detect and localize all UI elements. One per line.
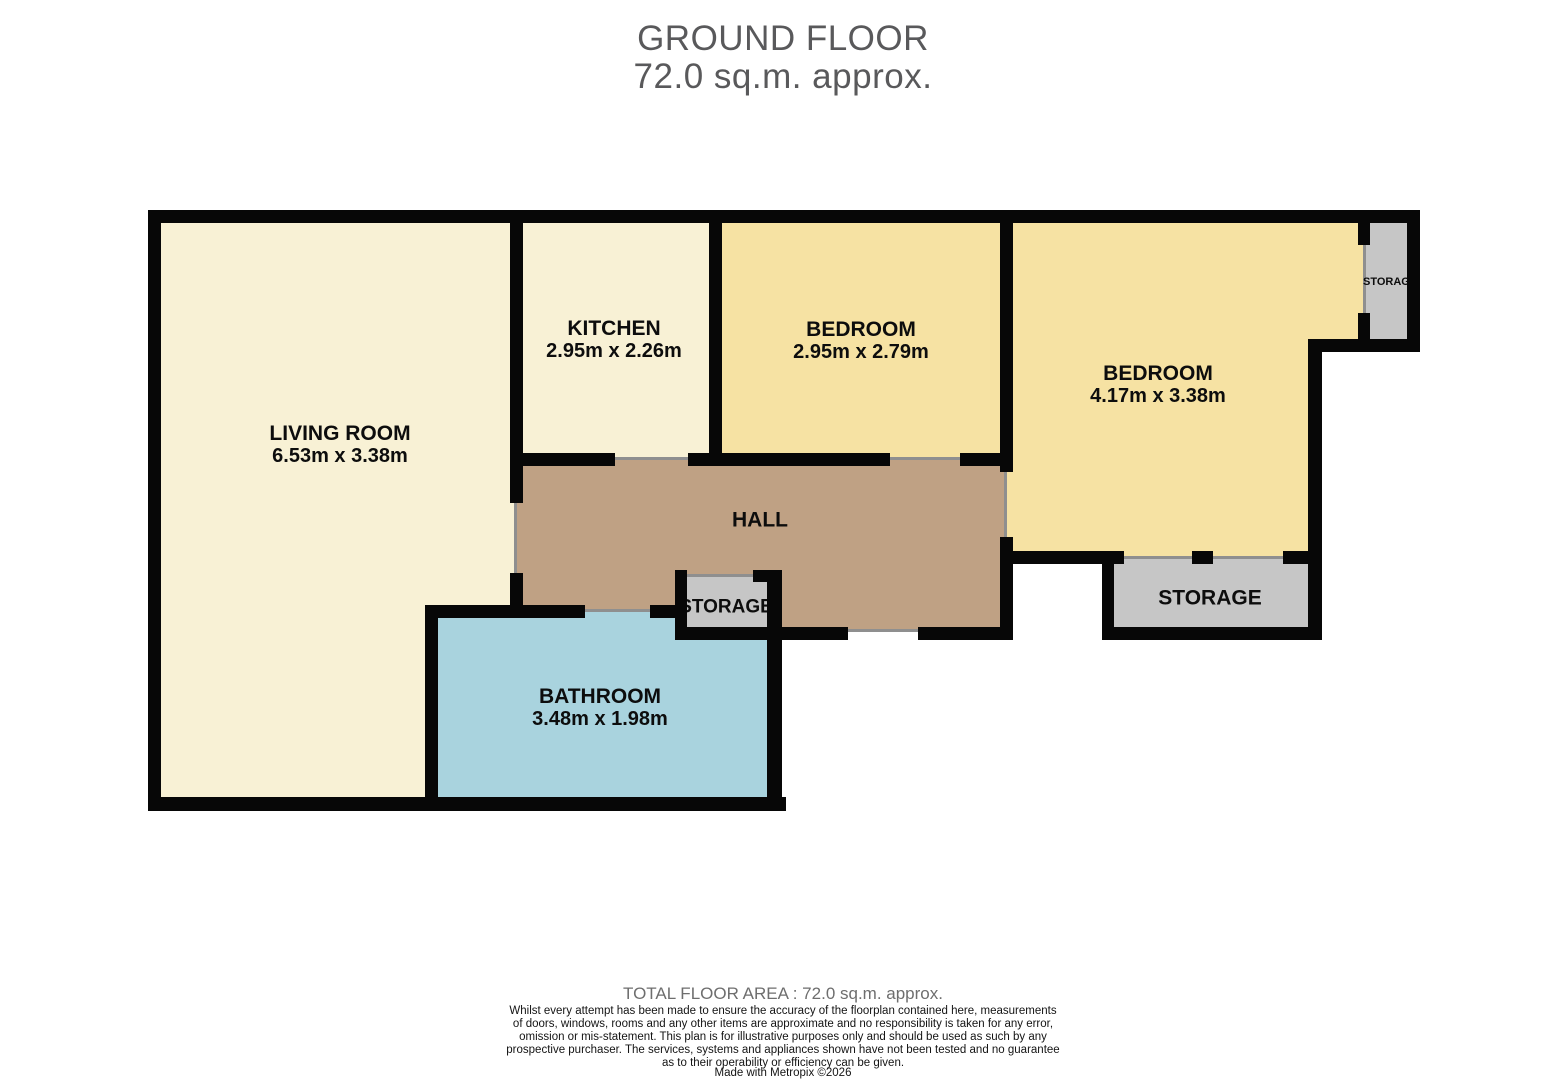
wall-hall-right: [1000, 537, 1013, 640]
wall-right-lower: [1308, 339, 1322, 640]
wall-bathroom-right: [767, 570, 782, 811]
living-room-area-lower: [160, 222, 431, 805]
wall-top: [148, 210, 1420, 223]
wall-hall-top-a: [510, 453, 615, 466]
bathroom-dims: 3.48m x 1.98m: [532, 708, 668, 731]
credit-text: Made with Metropix ©2026: [0, 1067, 1566, 1079]
title-floor-name: GROUND FLOOR: [0, 20, 1566, 58]
wall-hall-bottom-a: [782, 627, 848, 640]
wall-bathroom-top-a: [425, 605, 585, 618]
floorplan-page: GROUND FLOOR 72.0 sq.m. approx.: [0, 0, 1566, 1080]
wall-storage-bedroom-bottom: [1102, 627, 1322, 640]
living-dims: 6.53m x 3.38m: [269, 445, 410, 468]
disclaimer-text: Whilst every attempt has been made to en…: [0, 1005, 1566, 1070]
wall-living-kitchen: [510, 222, 523, 503]
room-label-kitchen: KITCHEN 2.95m x 2.26m: [546, 317, 682, 363]
living-name: LIVING ROOM: [269, 422, 410, 445]
kitchen-name: KITCHEN: [546, 317, 682, 340]
wall-storage-hall-left: [675, 570, 687, 640]
wall-bedroom1-bedroom2: [1000, 210, 1013, 472]
bedroom1-dims: 2.95m x 2.79m: [793, 341, 929, 364]
room-label-storage-hall: STORAGE: [679, 596, 773, 619]
total-floor-area: TOTAL FLOOR AREA : 72.0 sq.m. approx.: [0, 984, 1566, 1004]
door-opening-entrance: [848, 629, 918, 632]
bedroom2-area-ext: [1314, 222, 1364, 345]
door-opening-storage-bedroom-left: [1124, 556, 1192, 559]
room-label-bedroom2: BEDROOM 4.17m x 3.38m: [1090, 362, 1226, 408]
room-label-storage-bedroom: STORAGE: [1158, 587, 1261, 610]
storage-hall-name: STORAGE: [679, 597, 773, 618]
wall-right-top: [1407, 210, 1420, 352]
wall-hall-bottom-b: [918, 627, 1013, 640]
door-opening-bathroom: [585, 609, 650, 612]
door-opening-kitchen: [615, 457, 688, 460]
wall-bedroom2-bottom-stub: [1192, 551, 1213, 564]
room-label-bathroom: BATHROOM 3.48m x 1.98m: [532, 685, 668, 731]
hall-name: HALL: [732, 509, 788, 532]
wall-bathroom-left: [425, 605, 438, 811]
wall-storage-topright-stub-bottom: [1358, 313, 1370, 340]
title-floor-area: 72.0 sq.m. approx.: [0, 58, 1566, 96]
wall-bottom: [148, 797, 786, 811]
wall-right-step: [1308, 339, 1420, 352]
door-opening-storage-hall: [687, 574, 753, 577]
bedroom2-name: BEDROOM: [1090, 362, 1226, 385]
wall-storage-topright-stub-top: [1358, 222, 1370, 245]
storage-bedroom-name: STORAGE: [1158, 587, 1261, 610]
wall-left: [148, 210, 161, 811]
wall-kitchen-bedroom1: [709, 222, 722, 465]
room-label-bedroom1: BEDROOM 2.95m x 2.79m: [793, 318, 929, 364]
room-label-living: LIVING ROOM 6.53m x 3.38m: [269, 422, 410, 468]
plan-title: GROUND FLOOR 72.0 sq.m. approx.: [0, 20, 1566, 96]
kitchen-dims: 2.95m x 2.26m: [546, 340, 682, 363]
door-opening-storage-bedroom-right: [1213, 556, 1283, 559]
door-opening-living: [514, 503, 517, 573]
bathroom-name: BATHROOM: [532, 685, 668, 708]
door-opening-bedroom1: [890, 457, 960, 460]
bedroom1-name: BEDROOM: [793, 318, 929, 341]
wall-storage-hall-bottom: [675, 627, 782, 640]
wall-living-hall-stub: [510, 573, 523, 618]
bedroom2-dims: 4.17m x 3.38m: [1090, 385, 1226, 408]
room-label-hall: HALL: [732, 509, 788, 532]
wall-storage-bedroom-left: [1102, 551, 1114, 640]
door-opening-bedroom2: [1004, 472, 1007, 537]
